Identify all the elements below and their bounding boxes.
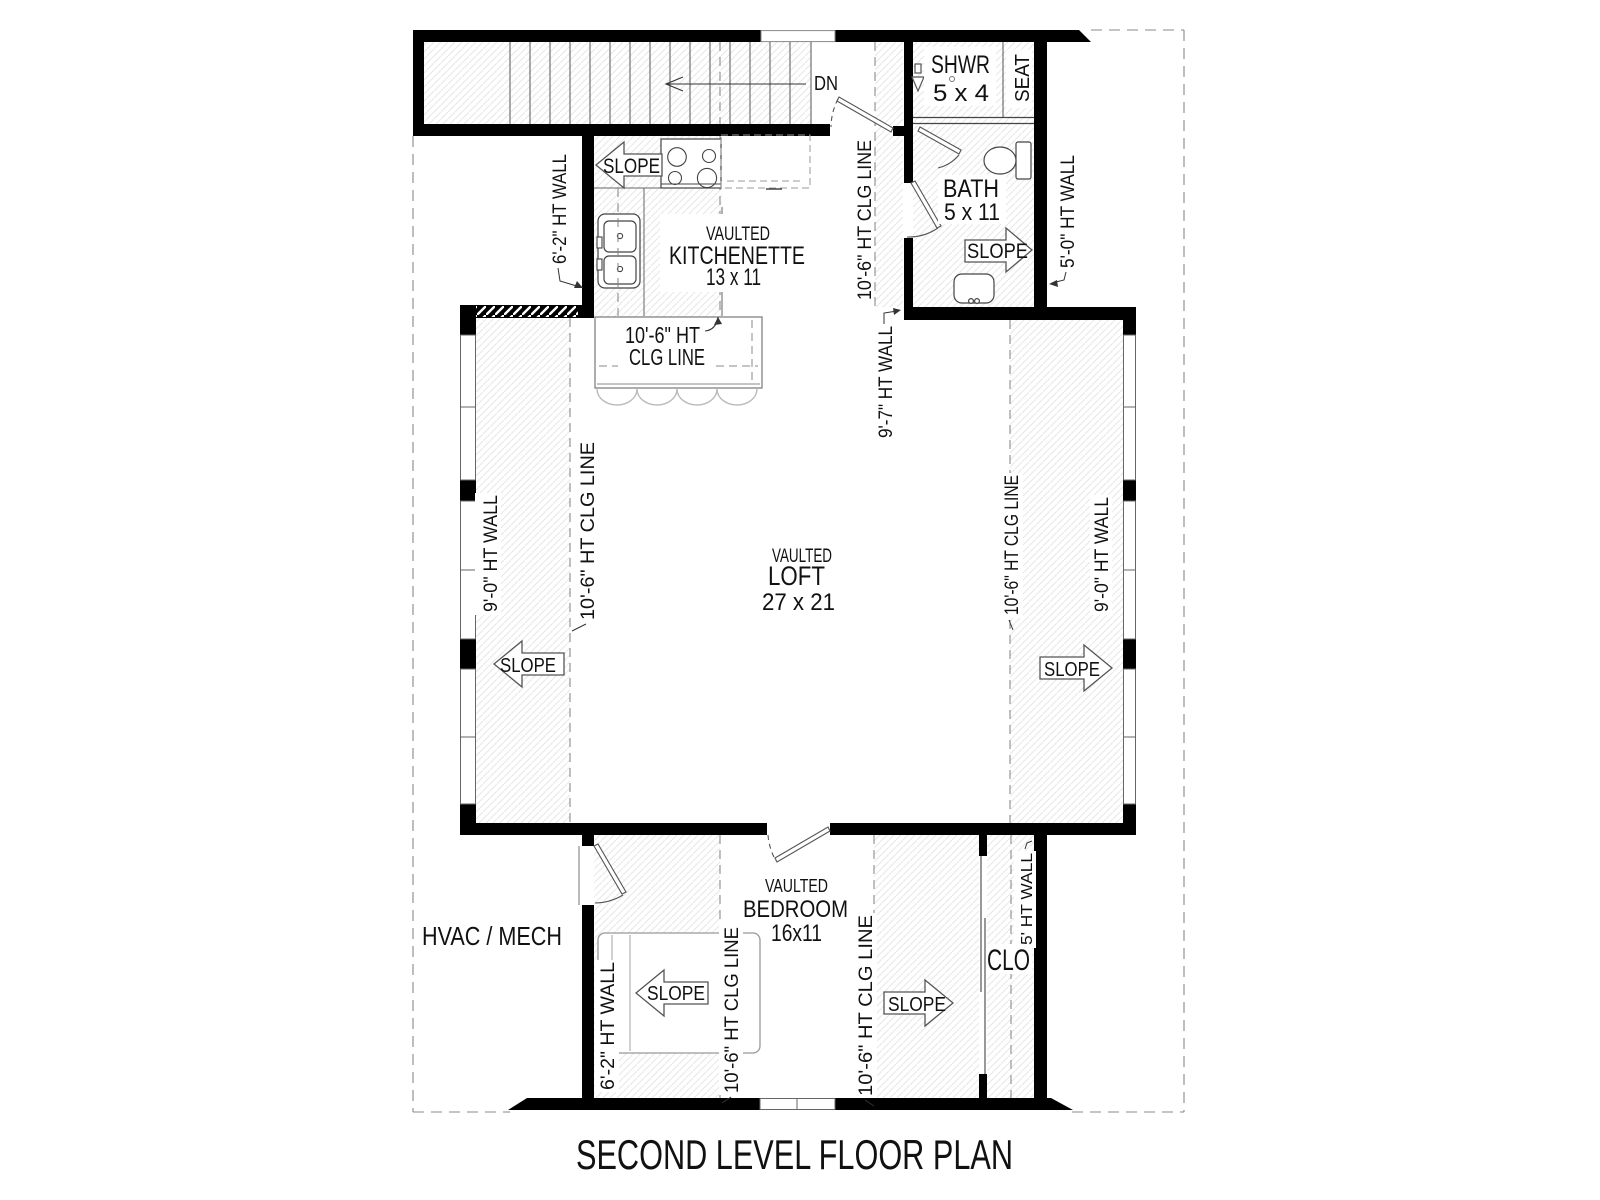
svg-text:DN: DN <box>814 73 838 95</box>
svg-text:SLOPE: SLOPE <box>603 155 660 178</box>
svg-text:10'-6" HT CLG LINE: 10'-6" HT CLG LINE <box>578 442 599 620</box>
svg-text:9'-0" HT WALL: 9'-0" HT WALL <box>481 495 502 612</box>
svg-text:SLOPE: SLOPE <box>1044 659 1100 681</box>
svg-text:6'-2" HT WALL: 6'-2" HT WALL <box>598 962 619 1090</box>
svg-text:SLOPE: SLOPE <box>967 240 1028 263</box>
svg-text:SEAT: SEAT <box>1012 54 1034 102</box>
svg-text:10'-6" HT CLG LINE: 10'-6" HT CLG LINE <box>856 915 877 1096</box>
svg-text:5' HT WALL: 5' HT WALL <box>1019 853 1036 945</box>
svg-text:CLO: CLO <box>987 944 1030 977</box>
svg-text:9'-7" HT WALL: 9'-7" HT WALL <box>876 326 897 438</box>
svg-text:LOFT: LOFT <box>768 561 825 591</box>
svg-text:10'-6" HT CLG LINE: 10'-6" HT CLG LINE <box>1002 475 1023 615</box>
svg-text:SHWR: SHWR <box>931 51 990 79</box>
svg-text:16x11: 16x11 <box>771 920 822 947</box>
svg-text:5 x 11: 5 x 11 <box>944 199 1000 226</box>
svg-text:10'-6" HT CLG LINE: 10'-6" HT CLG LINE <box>722 927 743 1093</box>
svg-text:5'-0" HT WALL: 5'-0" HT WALL <box>1058 155 1079 268</box>
svg-text:6'-2" HT WALL: 6'-2" HT WALL <box>550 154 571 264</box>
svg-text:CLG LINE: CLG LINE <box>629 344 705 370</box>
svg-text:VAULTED: VAULTED <box>765 876 828 896</box>
svg-text:27 x 21: 27 x 21 <box>762 589 835 616</box>
svg-text:SLOPE: SLOPE <box>888 994 946 1016</box>
svg-text:BEDROOM: BEDROOM <box>743 896 848 923</box>
svg-text:HVAC / MECH: HVAC / MECH <box>422 921 562 951</box>
svg-text:SLOPE: SLOPE <box>647 983 705 1005</box>
svg-text:SECOND LEVEL FLOOR PLAN: SECOND LEVEL FLOOR PLAN <box>576 1131 1013 1178</box>
svg-text:13 x 11: 13 x 11 <box>706 264 761 291</box>
svg-text:9'-0" HT WALL: 9'-0" HT WALL <box>1092 497 1113 612</box>
svg-text:5 x 4: 5 x 4 <box>933 80 989 107</box>
svg-text:10'-6" HT CLG LINE: 10'-6" HT CLG LINE <box>855 140 876 300</box>
svg-text:SLOPE: SLOPE <box>500 655 556 677</box>
